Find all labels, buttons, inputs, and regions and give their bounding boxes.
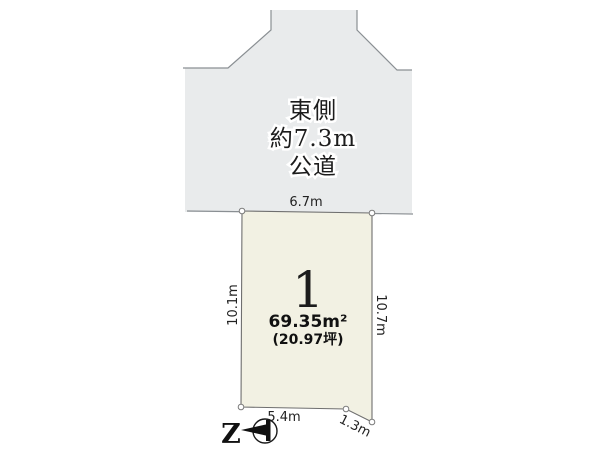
dimension-left: 10.1m (226, 284, 241, 326)
road-label-line1: 東側 (289, 98, 337, 124)
vertex-top-right (369, 210, 375, 216)
compass-north-label: Z (221, 419, 241, 450)
vertex-top-left (239, 208, 245, 214)
dimension-top: 6.7m (289, 195, 322, 210)
land-plot-diagram: 東側 約7.3m 公道 1 69.35m² (20.97坪) 6.7m 10.1… (0, 0, 600, 450)
compass: Z (221, 419, 277, 450)
plot-area-tsubo: (20.97坪) (272, 332, 343, 348)
road-label-line3: 公道 (289, 154, 337, 180)
compass-needle-tail-icon (266, 420, 271, 441)
vertex-bottom-mid (343, 406, 349, 412)
plot-number: 1 (292, 261, 324, 319)
road-label-line2: 約7.3m (270, 126, 356, 152)
plot-area-sqm: 69.35m² (269, 312, 348, 332)
vertex-bottom-right (369, 419, 375, 425)
dimension-right: 10.7m (373, 294, 388, 336)
plot-diagram-svg: 東側 約7.3m 公道 1 69.35m² (20.97坪) 6.7m 10.1… (0, 0, 600, 450)
vertex-bottom-left (238, 404, 244, 410)
